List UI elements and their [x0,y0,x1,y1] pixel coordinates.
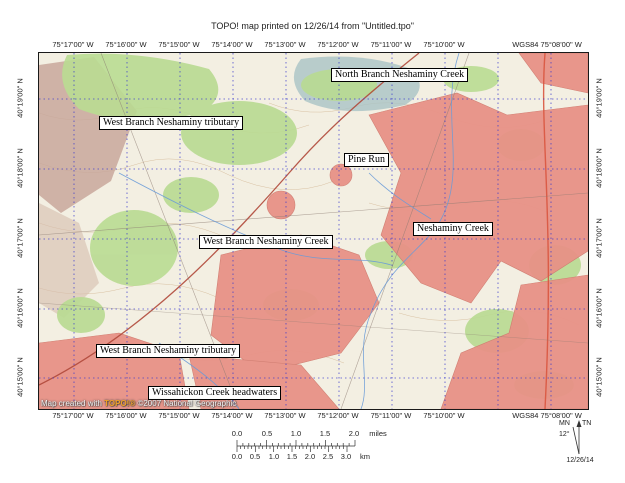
longitude-label: 75°15'00" W [158,40,199,49]
topo-map-page: TOPO! map printed on 12/26/14 from "Unti… [0,0,625,483]
longitude-label: 75°17'00" W [52,40,93,49]
scale-miles-value: 1.0 [291,429,301,438]
attribution-brand: TOPO!® [104,399,135,408]
latitude-label: 40°17'00" N [16,218,25,258]
scale-km-value: 0.0 [232,452,242,461]
longitude-label: 75°12'00" W [317,411,358,420]
map-feature-label: Neshaminy Creek [413,222,493,236]
longitude-label: 75°14'00" W [211,40,252,49]
longitude-labels-top: 75°17'00" W75°16'00" W75°15'00" W75°14'0… [0,40,625,51]
attribution-suffix: ©2007 National Geographic [135,399,236,408]
latitude-label: 40°15'00" N [595,357,604,397]
page-title: TOPO! map printed on 12/26/14 from "Unti… [0,21,625,31]
map-feature-label: Wissahickon Creek headwaters [148,386,281,400]
scale-km-value: 1.0 [269,452,279,461]
scale-km-value: km [360,452,370,461]
scale-km-value: 0.5 [250,452,260,461]
longitude-labels-bottom: 75°17'00" W75°16'00" W75°15'00" W75°14'0… [0,411,625,422]
scale-miles-value: miles [369,429,387,438]
longitude-label: 75°12'00" W [317,40,358,49]
scale-bar: 0.00.51.01.52.0miles 0.00.51.01.52.02.53… [228,429,403,461]
longitude-label: 75°10'00" W [423,411,464,420]
latitude-label: 40°19'00" N [16,78,25,118]
scale-km-value: 2.0 [305,452,315,461]
scale-miles-value: 1.5 [320,429,330,438]
attribution-prefix: Map created with [41,399,104,408]
latitude-label: 40°15'00" N [16,357,25,397]
map-feature-label: West Branch Neshaminy Creek [199,235,333,249]
longitude-label: 75°10'00" W [423,40,464,49]
map-feature-label: West Branch Neshaminy tributary [99,116,243,130]
latitude-label: 40°18'00" N [595,148,604,188]
latitude-label: 40°19'00" N [595,78,604,118]
longitude-label: 75°13'00" W [264,40,305,49]
declination-date: 12/26/14 [553,457,607,464]
longitude-label: 75°17'00" W [52,411,93,420]
scale-km-value: 3.0 [341,452,351,461]
longitude-label: 75°11'00" W [371,40,412,49]
longitude-label: 75°16'00" W [105,411,146,420]
scale-miles-value: 0.0 [232,429,242,438]
longitude-label: 75°13'00" W [264,411,305,420]
longitude-label: 75°16'00" W [105,40,146,49]
scale-km-value: 1.5 [287,452,297,461]
map-feature-label: West Branch Neshaminy tributary [96,344,240,358]
map-canvas: North Branch Neshaminy CreekWest Branch … [38,52,589,410]
declination-diagram: MN TN 12° 12/26/14 [553,418,613,470]
scale-miles-value: 0.5 [262,429,272,438]
latitude-label: 40°17'00" N [595,218,604,258]
north-arrows-icon [553,418,607,458]
longitude-label: 75°15'00" W [158,411,199,420]
latitude-label: 40°16'00" N [16,288,25,328]
scale-km-value: 2.5 [323,452,333,461]
map-feature-label: North Branch Neshaminy Creek [331,68,468,82]
scale-miles-value: 2.0 [349,429,359,438]
longitude-label: 75°11'00" W [371,411,412,420]
map-feature-label: Pine Run [344,153,389,167]
latitude-label: 40°16'00" N [595,288,604,328]
longitude-label: WGS84 75°08'00" W [512,40,582,49]
latitude-label: 40°18'00" N [16,148,25,188]
attribution: Map created with TOPO!® ©2007 National G… [41,399,236,408]
longitude-label: 75°14'00" W [211,411,252,420]
